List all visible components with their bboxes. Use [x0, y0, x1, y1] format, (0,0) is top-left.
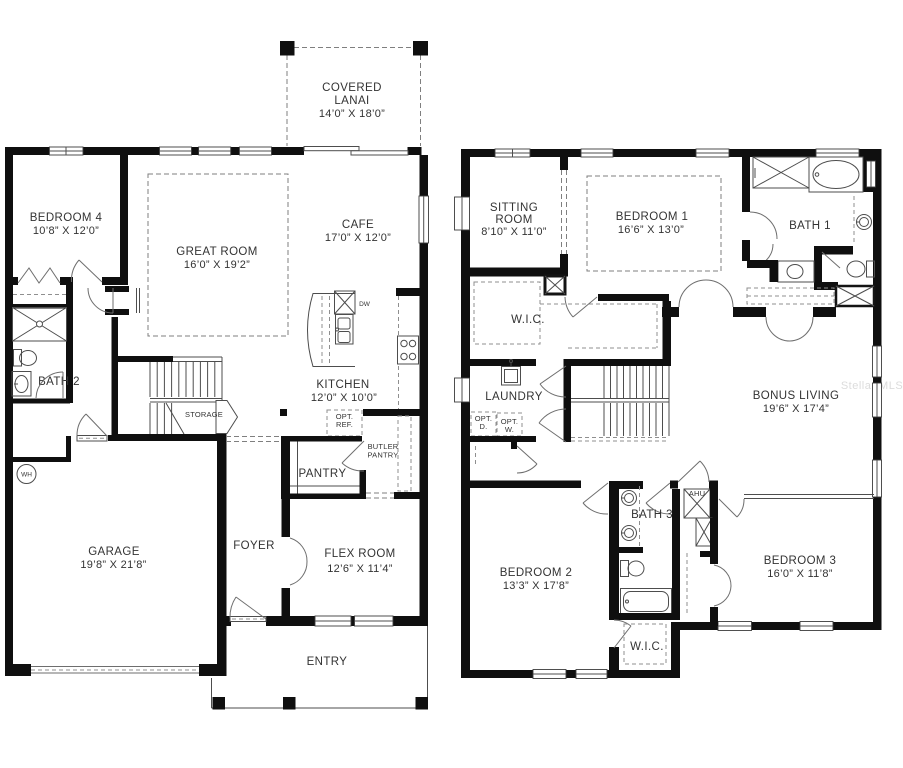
svg-text:13’3” X 17’8”: 13’3” X 17’8” [503, 580, 569, 592]
svg-text:BATH 1: BATH 1 [789, 220, 831, 232]
svg-text:12’6” X 11’4”: 12’6” X 11’4” [327, 563, 392, 575]
svg-text:16’6” X 13’0”: 16’6” X 13’0” [618, 224, 684, 236]
svg-text:BONUS LIVING: BONUS LIVING [753, 390, 840, 402]
svg-text:BATH 3: BATH 3 [631, 509, 673, 521]
svg-text:BEDROOM 1: BEDROOM 1 [616, 211, 689, 223]
svg-text:SITTING: SITTING [490, 202, 538, 214]
svg-text:W.: W. [505, 425, 514, 434]
svg-text:PANTRY: PANTRY [368, 451, 399, 460]
svg-text:AHU: AHU [689, 489, 705, 498]
svg-text:Stellar MLS: Stellar MLS [841, 380, 903, 392]
svg-text:19’8” X 21’8”: 19’8” X 21’8” [80, 559, 146, 571]
svg-text:STORAGE: STORAGE [185, 410, 223, 419]
svg-text:ROOM: ROOM [495, 214, 532, 226]
svg-text:GARAGE: GARAGE [88, 546, 140, 558]
svg-text:16’0” X 11’8”: 16’0” X 11’8” [767, 568, 832, 580]
svg-text:14’0” X 18’0”: 14’0” X 18’0” [319, 108, 385, 120]
svg-text:BEDROOM 4: BEDROOM 4 [30, 212, 103, 224]
svg-text:WH: WH [21, 472, 32, 479]
svg-text:10’8” X 12’0”: 10’8” X 12’0” [33, 225, 99, 237]
svg-text:REF.: REF. [336, 420, 353, 429]
svg-text:16’0” X 19’2”: 16’0” X 19’2” [184, 259, 250, 271]
svg-text:CAFE: CAFE [342, 219, 374, 231]
svg-text:KITCHEN: KITCHEN [316, 379, 369, 391]
svg-text:BEDROOM 2: BEDROOM 2 [500, 567, 573, 579]
svg-text:FOYER: FOYER [233, 540, 275, 552]
svg-text:19’6” X 17’4”: 19’6” X 17’4” [763, 403, 829, 415]
svg-text:LAUNDRY: LAUNDRY [485, 391, 543, 403]
svg-text:PANTRY: PANTRY [299, 468, 347, 480]
svg-text:GREAT ROOM: GREAT ROOM [176, 246, 258, 258]
svg-text:COVERED: COVERED [322, 82, 382, 94]
svg-text:ENTRY: ENTRY [307, 656, 348, 668]
svg-text:W.I.C.: W.I.C. [630, 641, 664, 653]
svg-text:LANAI: LANAI [334, 95, 369, 107]
svg-text:8’10” X 11’0”: 8’10” X 11’0” [481, 226, 546, 238]
svg-text:BATH 2: BATH 2 [38, 376, 80, 388]
svg-text:FLEX ROOM: FLEX ROOM [324, 548, 395, 560]
svg-text:17’0” X 12’0”: 17’0” X 12’0” [325, 232, 391, 244]
svg-text:DW: DW [359, 301, 371, 308]
svg-text:W.I.C.: W.I.C. [511, 314, 545, 326]
svg-text:12’0” X 10’0”: 12’0” X 10’0” [311, 392, 377, 404]
svg-text:BEDROOM 3: BEDROOM 3 [764, 555, 837, 567]
svg-text:D.: D. [480, 422, 488, 431]
